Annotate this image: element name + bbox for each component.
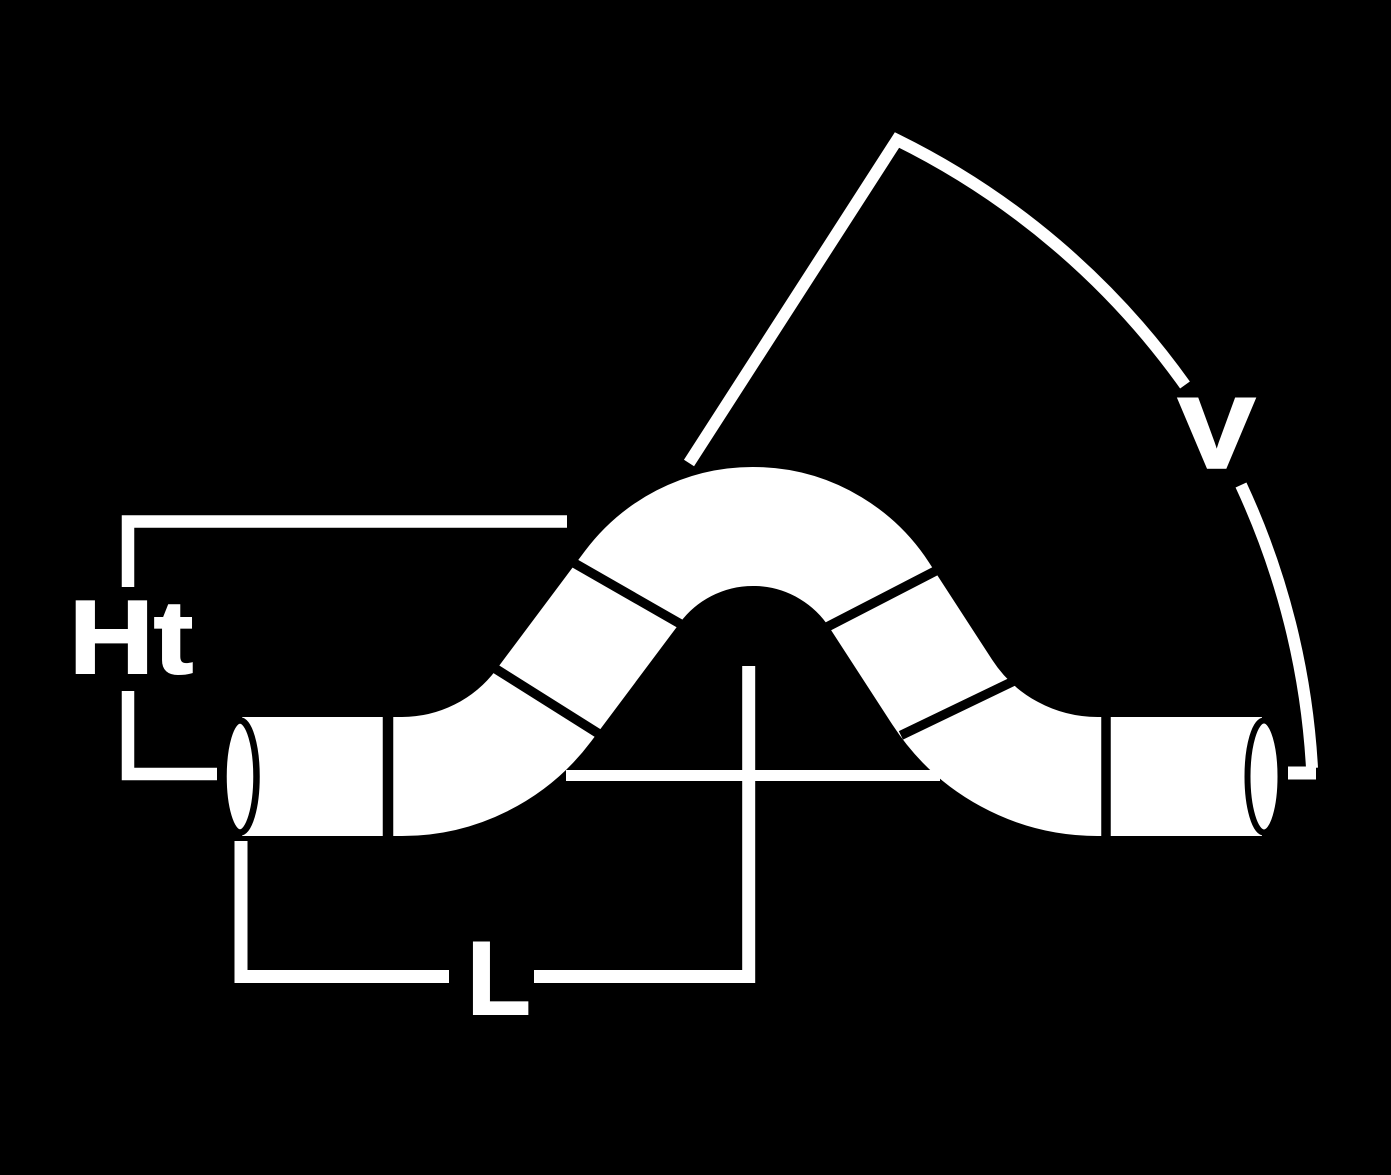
svg-text:Ht: Ht [69, 579, 193, 695]
svg-text:L: L [467, 921, 531, 1037]
svg-text:V: V [1179, 379, 1254, 489]
